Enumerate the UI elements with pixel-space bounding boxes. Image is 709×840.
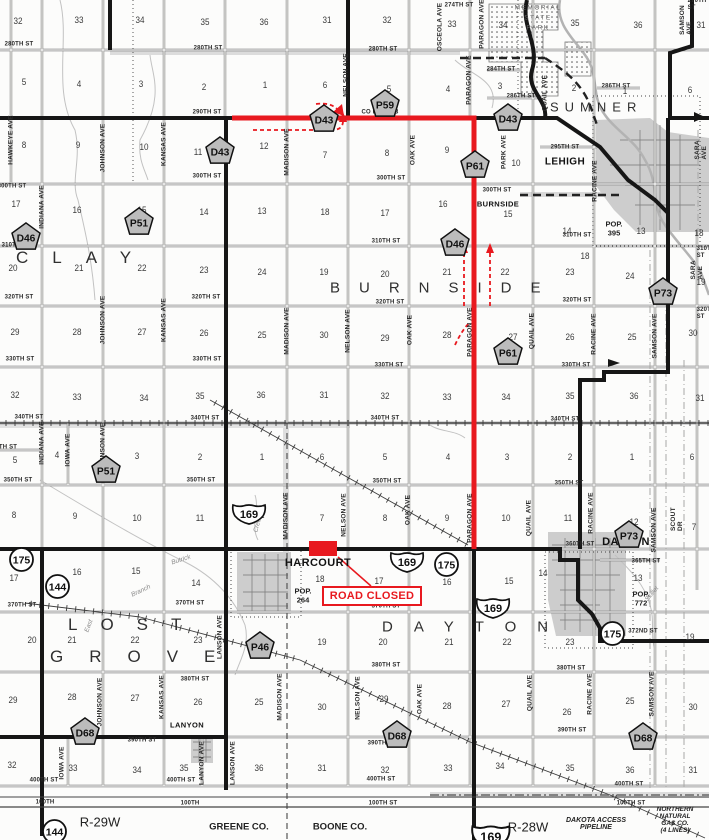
- street-label: 400TH ST: [167, 777, 196, 784]
- section-number: 16: [72, 567, 81, 577]
- street-label: 300TH ST: [193, 173, 222, 180]
- avenue-label: OAK AVE: [417, 684, 424, 714]
- section-number: 30: [319, 330, 328, 340]
- road-closed-callout: ROAD CLOSED: [322, 586, 422, 606]
- section-number: 18: [320, 207, 329, 217]
- bottom-strip-label: BOONE CO.: [313, 822, 367, 833]
- section-number: 4: [446, 84, 451, 94]
- svg-text:P46: P46: [251, 643, 270, 654]
- section-number: 35: [570, 18, 579, 28]
- svg-text:P61: P61: [499, 349, 518, 360]
- map-labels-layer: 280TH ST280TH ST280TH ST274TH ST270TH ST…: [0, 0, 709, 840]
- bottom-strip-label: DAKOTA ACCESS PIPELINE: [566, 817, 626, 831]
- avenue-label: QUAIL AVE: [542, 75, 549, 111]
- section-number: 36: [254, 763, 263, 773]
- section-number: 26: [562, 707, 571, 717]
- street-label: 280TH ST: [194, 45, 223, 52]
- avenue-label: OAK AVE: [407, 315, 414, 345]
- avenue-label: MADISON AVE: [277, 673, 284, 720]
- section-number: 19: [696, 277, 705, 287]
- avenue-label: PARAGON AVE: [479, 0, 486, 49]
- avenue-label: PARAGON AVE: [467, 493, 474, 542]
- section-number: 2: [202, 82, 207, 92]
- avenue-label: QUAIL AVE: [527, 675, 534, 711]
- section-number: 31: [317, 763, 326, 773]
- section-number: 31: [319, 390, 328, 400]
- town-name: LEHIGH: [545, 157, 585, 168]
- section-number: 3: [135, 451, 140, 461]
- svg-text:P59: P59: [376, 101, 395, 112]
- section-number: 33: [72, 392, 81, 402]
- section-number: 2: [568, 452, 573, 462]
- section-number: 32: [380, 765, 389, 775]
- svg-text:P51: P51: [97, 467, 116, 478]
- section-number: 31: [322, 15, 331, 25]
- section-number: 15: [503, 209, 512, 219]
- section-number: 33: [74, 15, 83, 25]
- section-number: 25: [625, 696, 634, 706]
- section-number: 35: [565, 391, 574, 401]
- section-number: 3: [139, 79, 144, 89]
- section-number: 29: [10, 327, 19, 337]
- section-number: 22: [130, 635, 139, 645]
- avenue-label: NELSON AVE: [343, 53, 350, 97]
- section-number: 23: [199, 265, 208, 275]
- section-number: 21: [444, 637, 453, 647]
- section-number: 6: [320, 452, 325, 462]
- street-label: 350TH ST: [373, 478, 402, 485]
- street-label: 400TH ST: [30, 777, 59, 784]
- section-number: 18: [315, 574, 324, 584]
- section-number: 9: [445, 145, 450, 155]
- street-label: 380TH ST: [181, 676, 210, 683]
- svg-text:175: 175: [13, 555, 31, 567]
- svg-text:169: 169: [240, 509, 258, 521]
- section-number: 12: [259, 141, 268, 151]
- section-number: 27: [137, 327, 146, 337]
- section-number: 34: [139, 393, 148, 403]
- section-number: 21: [442, 267, 451, 277]
- avenue-label: SAMSON AVE: [649, 672, 656, 717]
- population-label: POP. 395: [606, 220, 623, 239]
- avenue-label: LANSON AVE: [230, 741, 237, 785]
- section-number: 6: [323, 80, 328, 90]
- svg-text:175: 175: [438, 560, 456, 572]
- street-label: 330TH ST: [6, 356, 35, 363]
- svg-text:P51: P51: [130, 219, 149, 230]
- street-label: 340TH ST: [191, 415, 220, 422]
- section-number: 31: [695, 393, 704, 403]
- section-number: 13: [636, 226, 645, 236]
- avenue-label: JOHNSON AVE: [100, 124, 107, 173]
- avenue-label: PARAGON AVE: [466, 55, 473, 104]
- avenue-label: RACINE AVE: [591, 313, 598, 354]
- section-number: 22: [500, 267, 509, 277]
- svg-text:D68: D68: [76, 729, 95, 740]
- town-name: HARCOURT: [285, 557, 351, 569]
- section-number: 9: [445, 513, 450, 523]
- section-number: 31: [688, 765, 697, 775]
- svg-text:144: 144: [46, 827, 64, 839]
- avenue-label: INDIANA AVE: [39, 421, 46, 465]
- street-label: 360TH ST: [566, 541, 595, 548]
- creek-label: Branch: [130, 583, 152, 598]
- street-label: 280TH ST: [369, 46, 398, 53]
- svg-text:169: 169: [398, 557, 416, 569]
- section-number: 13: [257, 206, 266, 216]
- street-label: 300TH ST: [0, 183, 26, 190]
- section-number: 34: [501, 392, 510, 402]
- section-number: 26: [199, 328, 208, 338]
- avenue-label: MADISON AVE: [283, 492, 290, 539]
- section-number: 10: [132, 513, 141, 523]
- avenue-label: OAK AVE: [410, 135, 417, 165]
- avenue-label: LANYON AVE: [199, 741, 206, 785]
- svg-text:169: 169: [484, 603, 502, 615]
- street-label: 320TH ST: [563, 297, 592, 304]
- street-label: 380TH ST: [557, 665, 586, 672]
- svg-text:169: 169: [480, 830, 501, 840]
- avenue-label: JOHNSON AVE: [100, 296, 107, 345]
- section-number: 28: [67, 692, 76, 702]
- avenue-label: RACINE AVE: [588, 492, 595, 533]
- avenue-label: QUAIL AVE: [529, 313, 536, 349]
- section-number: 9: [76, 140, 81, 150]
- svg-text:D43: D43: [315, 116, 334, 127]
- section-number: 13: [633, 573, 642, 583]
- section-number: 28: [442, 701, 451, 711]
- section-number: 34: [135, 15, 144, 25]
- avenue-label: IOWA AVE: [59, 746, 66, 779]
- section-number: 35: [565, 763, 574, 773]
- street-label: 370TH ST: [8, 602, 37, 609]
- street-label: 370TH ST: [176, 600, 205, 607]
- street-label: 100TH: [181, 800, 200, 807]
- section-number: 8: [385, 148, 390, 158]
- street-label: 390TH ST: [558, 727, 587, 734]
- section-number: 32: [13, 16, 22, 26]
- section-number: 32: [382, 15, 391, 25]
- street-label: 100TH ST: [369, 800, 398, 807]
- street-label: 100TH: [36, 799, 55, 806]
- section-number: 22: [502, 637, 511, 647]
- park-label: MEMORIAL STATE PARK: [515, 3, 562, 32]
- section-number: 23: [193, 635, 202, 645]
- bottom-strip-label: NORTHERN NATURAL GAS CO. (4 LINES): [657, 806, 694, 834]
- section-number: 26: [565, 332, 574, 342]
- section-number: 24: [625, 271, 634, 281]
- avenue-label: OSCEOLA AVE: [437, 3, 444, 52]
- section-number: 33: [447, 19, 456, 29]
- creek-label: Skillet: [644, 585, 661, 603]
- section-number: 17: [380, 208, 389, 218]
- section-number: 17: [9, 573, 18, 583]
- town-name: LANYON: [170, 721, 204, 730]
- section-number: 20: [378, 637, 387, 647]
- section-number: 3: [505, 452, 510, 462]
- avenue-label: OAK AVE: [405, 495, 412, 525]
- street-label: 310TH ST: [697, 245, 709, 259]
- section-number: 33: [443, 763, 452, 773]
- section-number: 33: [442, 392, 451, 402]
- section-number: 32: [10, 390, 19, 400]
- section-number: 8: [22, 140, 27, 150]
- section-number: 36: [256, 390, 265, 400]
- section-number: 34: [132, 765, 141, 775]
- section-number: 6: [690, 452, 695, 462]
- section-number: 5: [13, 455, 18, 465]
- street-label: 340TH ST: [371, 415, 400, 422]
- section-number: 1: [630, 452, 635, 462]
- street-label: 380TH ST: [372, 662, 401, 669]
- town-name: BURNSIDE: [477, 200, 519, 209]
- avenue-label: PARAGON AVE: [467, 307, 474, 356]
- street-label: 284TH ST: [487, 66, 516, 73]
- section-number: 25: [627, 332, 636, 342]
- section-number: 2: [572, 83, 577, 93]
- street-label: TH ST: [0, 444, 17, 451]
- section-number: 17: [374, 576, 383, 586]
- avenue-label: NELSON AVE: [345, 309, 352, 353]
- section-number: 17: [11, 199, 20, 209]
- svg-text:175: 175: [604, 629, 622, 641]
- section-number: 1: [623, 86, 628, 96]
- section-number: 16: [72, 205, 81, 215]
- avenue-label: SCOUT DR: [670, 499, 684, 531]
- section-number: 33: [68, 763, 77, 773]
- section-number: 29: [8, 695, 17, 705]
- section-number: 1: [263, 80, 268, 90]
- street-label: 320TH ST: [697, 306, 709, 320]
- street-label: 340TH ST: [15, 414, 44, 421]
- svg-text:D43: D43: [499, 115, 518, 126]
- section-number: 16: [442, 577, 451, 587]
- section-number: 16: [438, 199, 447, 209]
- section-number: 14: [199, 207, 208, 217]
- street-label: 274TH ST: [445, 2, 474, 9]
- street-label: 300TH ST: [377, 175, 406, 182]
- section-number: 5: [22, 77, 27, 87]
- section-number: 7: [692, 522, 697, 532]
- bottom-strip-label: GREENE CO.: [209, 822, 269, 833]
- section-number: 1: [260, 452, 265, 462]
- svg-text:D43: D43: [211, 148, 230, 159]
- section-number: 11: [564, 513, 572, 523]
- section-number: 14: [562, 226, 571, 236]
- section-number: 20: [27, 635, 36, 645]
- population-label: POP. 264: [295, 587, 312, 606]
- street-label: 295TH ST: [551, 144, 580, 151]
- section-number: 4: [55, 450, 60, 460]
- section-number: 8: [383, 513, 388, 523]
- svg-text:144: 144: [49, 582, 67, 594]
- section-number: 14: [538, 568, 547, 578]
- avenue-label: SARA AVE: [694, 141, 708, 160]
- street-label: 320TH ST: [5, 294, 34, 301]
- avenue-label: KANSAS AVE: [161, 298, 168, 342]
- street-label: 320TH ST: [192, 294, 221, 301]
- avenue-label: QUAIL AVE: [526, 500, 533, 536]
- section-number: 29: [379, 694, 388, 704]
- street-label: 286TH ST: [507, 93, 536, 100]
- section-number: 34: [498, 20, 507, 30]
- section-number: 26: [193, 697, 202, 707]
- section-number: 35: [195, 391, 204, 401]
- avenue-label: NELSON AVE: [341, 493, 348, 537]
- street-label: 330TH ST: [375, 362, 404, 369]
- street-label: 365TH ST: [632, 558, 661, 565]
- section-number: 35: [200, 17, 209, 27]
- street-label: 390TH ST: [128, 737, 157, 744]
- section-number: 18: [694, 228, 703, 238]
- avenue-label: IOWA AVE: [65, 433, 72, 466]
- section-number: 34: [495, 761, 504, 771]
- street-label: 280TH ST: [5, 41, 34, 48]
- street-label: 350TH ST: [555, 480, 584, 487]
- section-number: 11: [194, 147, 202, 157]
- street-label: 100TH ST: [617, 800, 646, 807]
- svg-text:P73: P73: [620, 532, 639, 543]
- section-number: 19: [685, 632, 694, 642]
- section-number: 32: [7, 760, 16, 770]
- section-number: 36: [633, 20, 642, 30]
- section-number: 27: [501, 699, 510, 709]
- section-number: 11: [196, 513, 204, 523]
- section-number: 24: [257, 267, 266, 277]
- avenue-label: SAMSON AVE: [651, 508, 658, 553]
- svg-text:P73: P73: [654, 289, 673, 300]
- section-number: 35: [179, 763, 188, 773]
- section-number: 19: [317, 637, 326, 647]
- section-number: 31: [696, 20, 705, 30]
- township-name: BURNSIDE: [330, 280, 560, 297]
- section-number: 19: [319, 267, 328, 277]
- section-number: 36: [259, 17, 268, 27]
- county-road-detour-map: 280TH ST280TH ST280TH ST274TH ST270TH ST…: [0, 0, 709, 840]
- section-number: 30: [317, 702, 326, 712]
- section-number: 20: [380, 269, 389, 279]
- township-name: CLAY: [16, 248, 155, 268]
- svg-text:D68: D68: [634, 734, 653, 745]
- bottom-strip-label: R-29W: [80, 815, 120, 830]
- street-label: 340TH ST: [551, 416, 580, 423]
- street-label: 372ND ST: [628, 628, 657, 635]
- avenue-label: MADISON AVE: [284, 128, 291, 175]
- avenue-label: RACINE AVE: [587, 673, 594, 714]
- creek-label: Butrick: [170, 554, 191, 567]
- township-name: GROVE: [50, 647, 241, 667]
- avenue-label: SAMSON AVE: [652, 314, 659, 359]
- township-name: SUMNER: [550, 100, 642, 115]
- section-number: 28: [72, 327, 81, 337]
- section-number: 36: [629, 391, 638, 401]
- avenue-label: SAMSON AVE: [679, 5, 693, 35]
- section-number: 14: [191, 578, 200, 588]
- section-number: 21: [67, 635, 76, 645]
- street-label: 330TH ST: [193, 356, 222, 363]
- svg-text:P61: P61: [466, 162, 485, 173]
- street-label: 300TH ST: [483, 187, 512, 194]
- section-number: 32: [380, 391, 389, 401]
- svg-text:D68: D68: [388, 732, 407, 743]
- section-number: 10: [501, 513, 510, 523]
- section-number: 23: [565, 637, 574, 647]
- section-number: 10: [139, 142, 148, 152]
- section-number: 7: [320, 513, 325, 523]
- street-label: 350TH ST: [4, 477, 33, 484]
- section-number: 30: [688, 328, 697, 338]
- section-number: 25: [257, 330, 266, 340]
- street-label: 310TH ST: [372, 238, 401, 245]
- section-number: 30: [688, 702, 697, 712]
- avenue-label: NELSON AVE: [355, 676, 362, 720]
- street-label: 290TH ST: [193, 109, 222, 116]
- section-number: 6: [688, 85, 693, 95]
- section-number: 36: [625, 765, 634, 775]
- section-number: 15: [504, 576, 513, 586]
- avenue-label: KANSAS AVE: [161, 122, 168, 166]
- section-number: 15: [131, 566, 140, 576]
- avenue-label: HAWKEYE AVE: [8, 115, 15, 165]
- township-name: DAYTON: [382, 619, 569, 636]
- street-label: 330TH ST: [562, 362, 591, 369]
- section-number: 25: [254, 697, 263, 707]
- street-label: 400TH ST: [367, 776, 396, 783]
- section-number: 7: [323, 150, 328, 160]
- street-label: 350TH ST: [187, 477, 216, 484]
- section-number: 3: [498, 81, 503, 91]
- section-number: 27: [130, 693, 139, 703]
- street-label: 320TH ST: [376, 299, 405, 306]
- avenue-label: PARK AVE: [501, 135, 508, 169]
- section-number: 8: [12, 510, 17, 520]
- section-number: 2: [198, 452, 203, 462]
- section-number: 23: [565, 267, 574, 277]
- avenue-label: MADISON AVE: [284, 307, 291, 354]
- svg-text:D46: D46: [17, 234, 36, 245]
- section-number: 10: [511, 158, 520, 168]
- section-number: 28: [442, 330, 451, 340]
- section-number: 5: [383, 452, 388, 462]
- section-number: 9: [73, 511, 78, 521]
- svg-text:D46: D46: [446, 240, 465, 251]
- section-number: 4: [77, 79, 82, 89]
- section-number: 18: [580, 251, 589, 261]
- bottom-strip-label: R-28W: [508, 820, 548, 835]
- section-number: 4: [446, 452, 451, 462]
- avenue-label: RACINE AVE: [592, 160, 599, 201]
- section-number: 29: [380, 333, 389, 343]
- street-label: 400TH ST: [615, 781, 644, 788]
- avenue-label: KANSAS AVE: [159, 675, 166, 719]
